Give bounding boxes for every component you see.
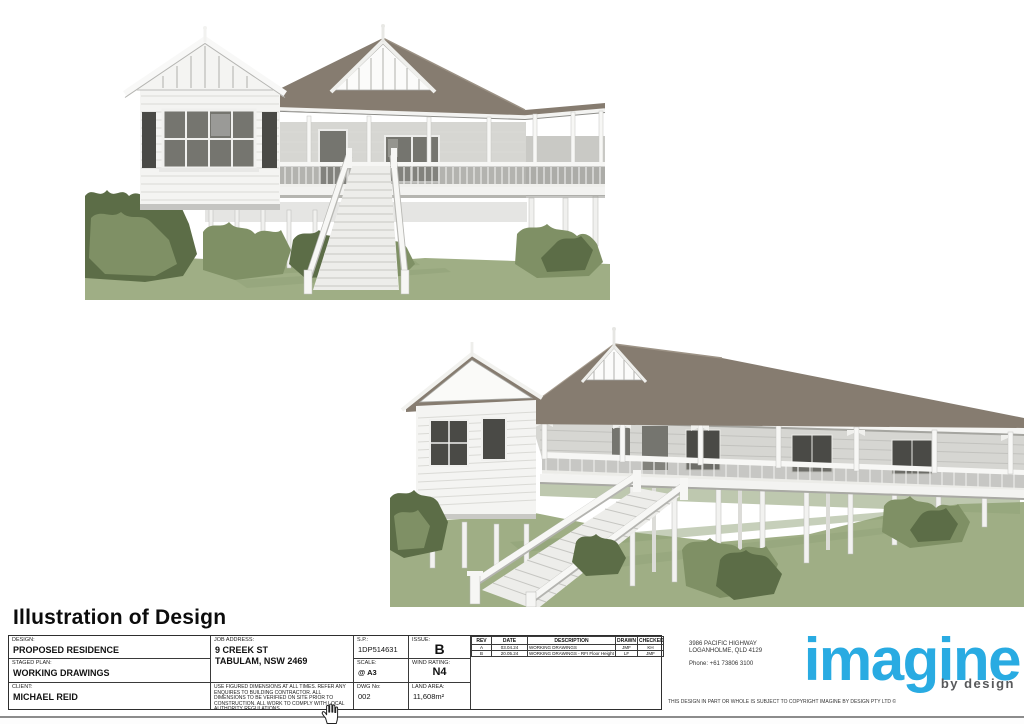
field-job-address: JOB ADDRESS: 9 CREEK ST TABULAM, NSW 246…: [211, 636, 354, 683]
imagine-logo: imagine by design: [804, 631, 1020, 691]
revision-row: B 20.05.24 WORKING DRAWINGS - RFI Floor …: [472, 651, 664, 657]
land-area-label: LAND AREA:: [409, 683, 470, 691]
wind-rating-value: N4: [409, 667, 470, 677]
staged-plan-label: STAGED PLAN:: [9, 659, 210, 667]
rev-b-checked: JMF: [638, 651, 664, 657]
job-address-line1: 9 CREEK ST: [211, 644, 353, 655]
sp-label: S.P.:: [354, 636, 408, 644]
rev-b-description: WORKING DRAWINGS - RFI Floor Height: [528, 651, 616, 657]
rev-header: REV: [472, 637, 492, 645]
hand-tool-cursor: [318, 702, 344, 724]
rev-b-date: 20.05.24: [492, 651, 528, 657]
field-scale: SCALE: @ A3: [354, 659, 409, 683]
company-block: 3986 PACIFIC HIGHWAY LOGANHOLME, QLD 412…: [662, 635, 1022, 711]
job-address-label: JOB ADDRESS:: [211, 636, 353, 644]
design-label: DESIGN:: [9, 636, 210, 644]
rev-b: B: [472, 651, 492, 657]
copyright-notice: THIS DESIGN IN PART OR WHOLE IS SUBJECT …: [668, 699, 896, 705]
company-phone: Phone: +61 73806 3100: [689, 661, 753, 667]
land-area-value: 11,608m²: [409, 691, 470, 702]
field-staged-plan: STAGED PLAN: WORKING DRAWINGS: [9, 659, 211, 683]
field-design: DESIGN: PROPOSED RESIDENCE: [9, 636, 211, 659]
field-land-area: LAND AREA: 11,608m²: [409, 683, 471, 709]
title-block: DESIGN: PROPOSED RESIDENCE STAGED PLAN: …: [8, 635, 662, 710]
job-address-line2: TABULAM, NSW 2469: [211, 655, 353, 666]
render-rear-perspective: [390, 302, 1024, 607]
description-header: DESCRIPTION: [528, 637, 616, 645]
dwg-value: 002: [354, 691, 408, 702]
field-wind-rating: WIND RATING: N4: [409, 659, 471, 683]
design-value: PROPOSED RESIDENCE: [9, 644, 210, 655]
checked-header: CHECKED: [638, 637, 664, 645]
company-address-line2: LOGANHOLME, QLD 4129: [689, 648, 762, 655]
drawn-header: DRAWN: [616, 637, 638, 645]
revision-table: REV DATE DESCRIPTION DRAWN CHECKED A 03.…: [471, 636, 663, 709]
field-issue: ISSUE: B: [409, 636, 471, 659]
dwg-label: DWG No:: [354, 683, 408, 691]
staged-plan-value: WORKING DRAWINGS: [9, 667, 210, 678]
render-front-elevation: [85, 18, 610, 300]
field-client: CLIENT: MICHAEL REID: [9, 683, 211, 709]
gable-wing-rear: [402, 342, 542, 522]
scale-label: SCALE:: [354, 659, 408, 667]
below-page-area: [0, 718, 1024, 724]
field-sp: S.P.: 1DP514631: [354, 636, 409, 659]
roof-rear: [516, 327, 1024, 428]
company-address: 3986 PACIFIC HIGHWAY LOGANHOLME, QLD 412…: [689, 641, 762, 655]
scale-value: @ A3: [354, 667, 408, 678]
issue-value: B: [409, 644, 470, 654]
client-label: CLIENT:: [9, 683, 210, 691]
sp-value: 1DP514631: [354, 644, 408, 655]
drawing-sheet: Illustration of Design DESIGN: PROPOSED …: [0, 0, 1024, 724]
field-dwg: DWG No: 002: [354, 683, 409, 709]
client-value: MICHAEL REID: [9, 691, 210, 702]
gable-wing: [125, 26, 285, 210]
rev-b-drawn: LF: [616, 651, 638, 657]
company-address-line1: 3986 PACIFIC HIGHWAY: [689, 641, 762, 648]
date-header: DATE: [492, 637, 528, 645]
page-title: Illustration of Design: [13, 606, 226, 630]
